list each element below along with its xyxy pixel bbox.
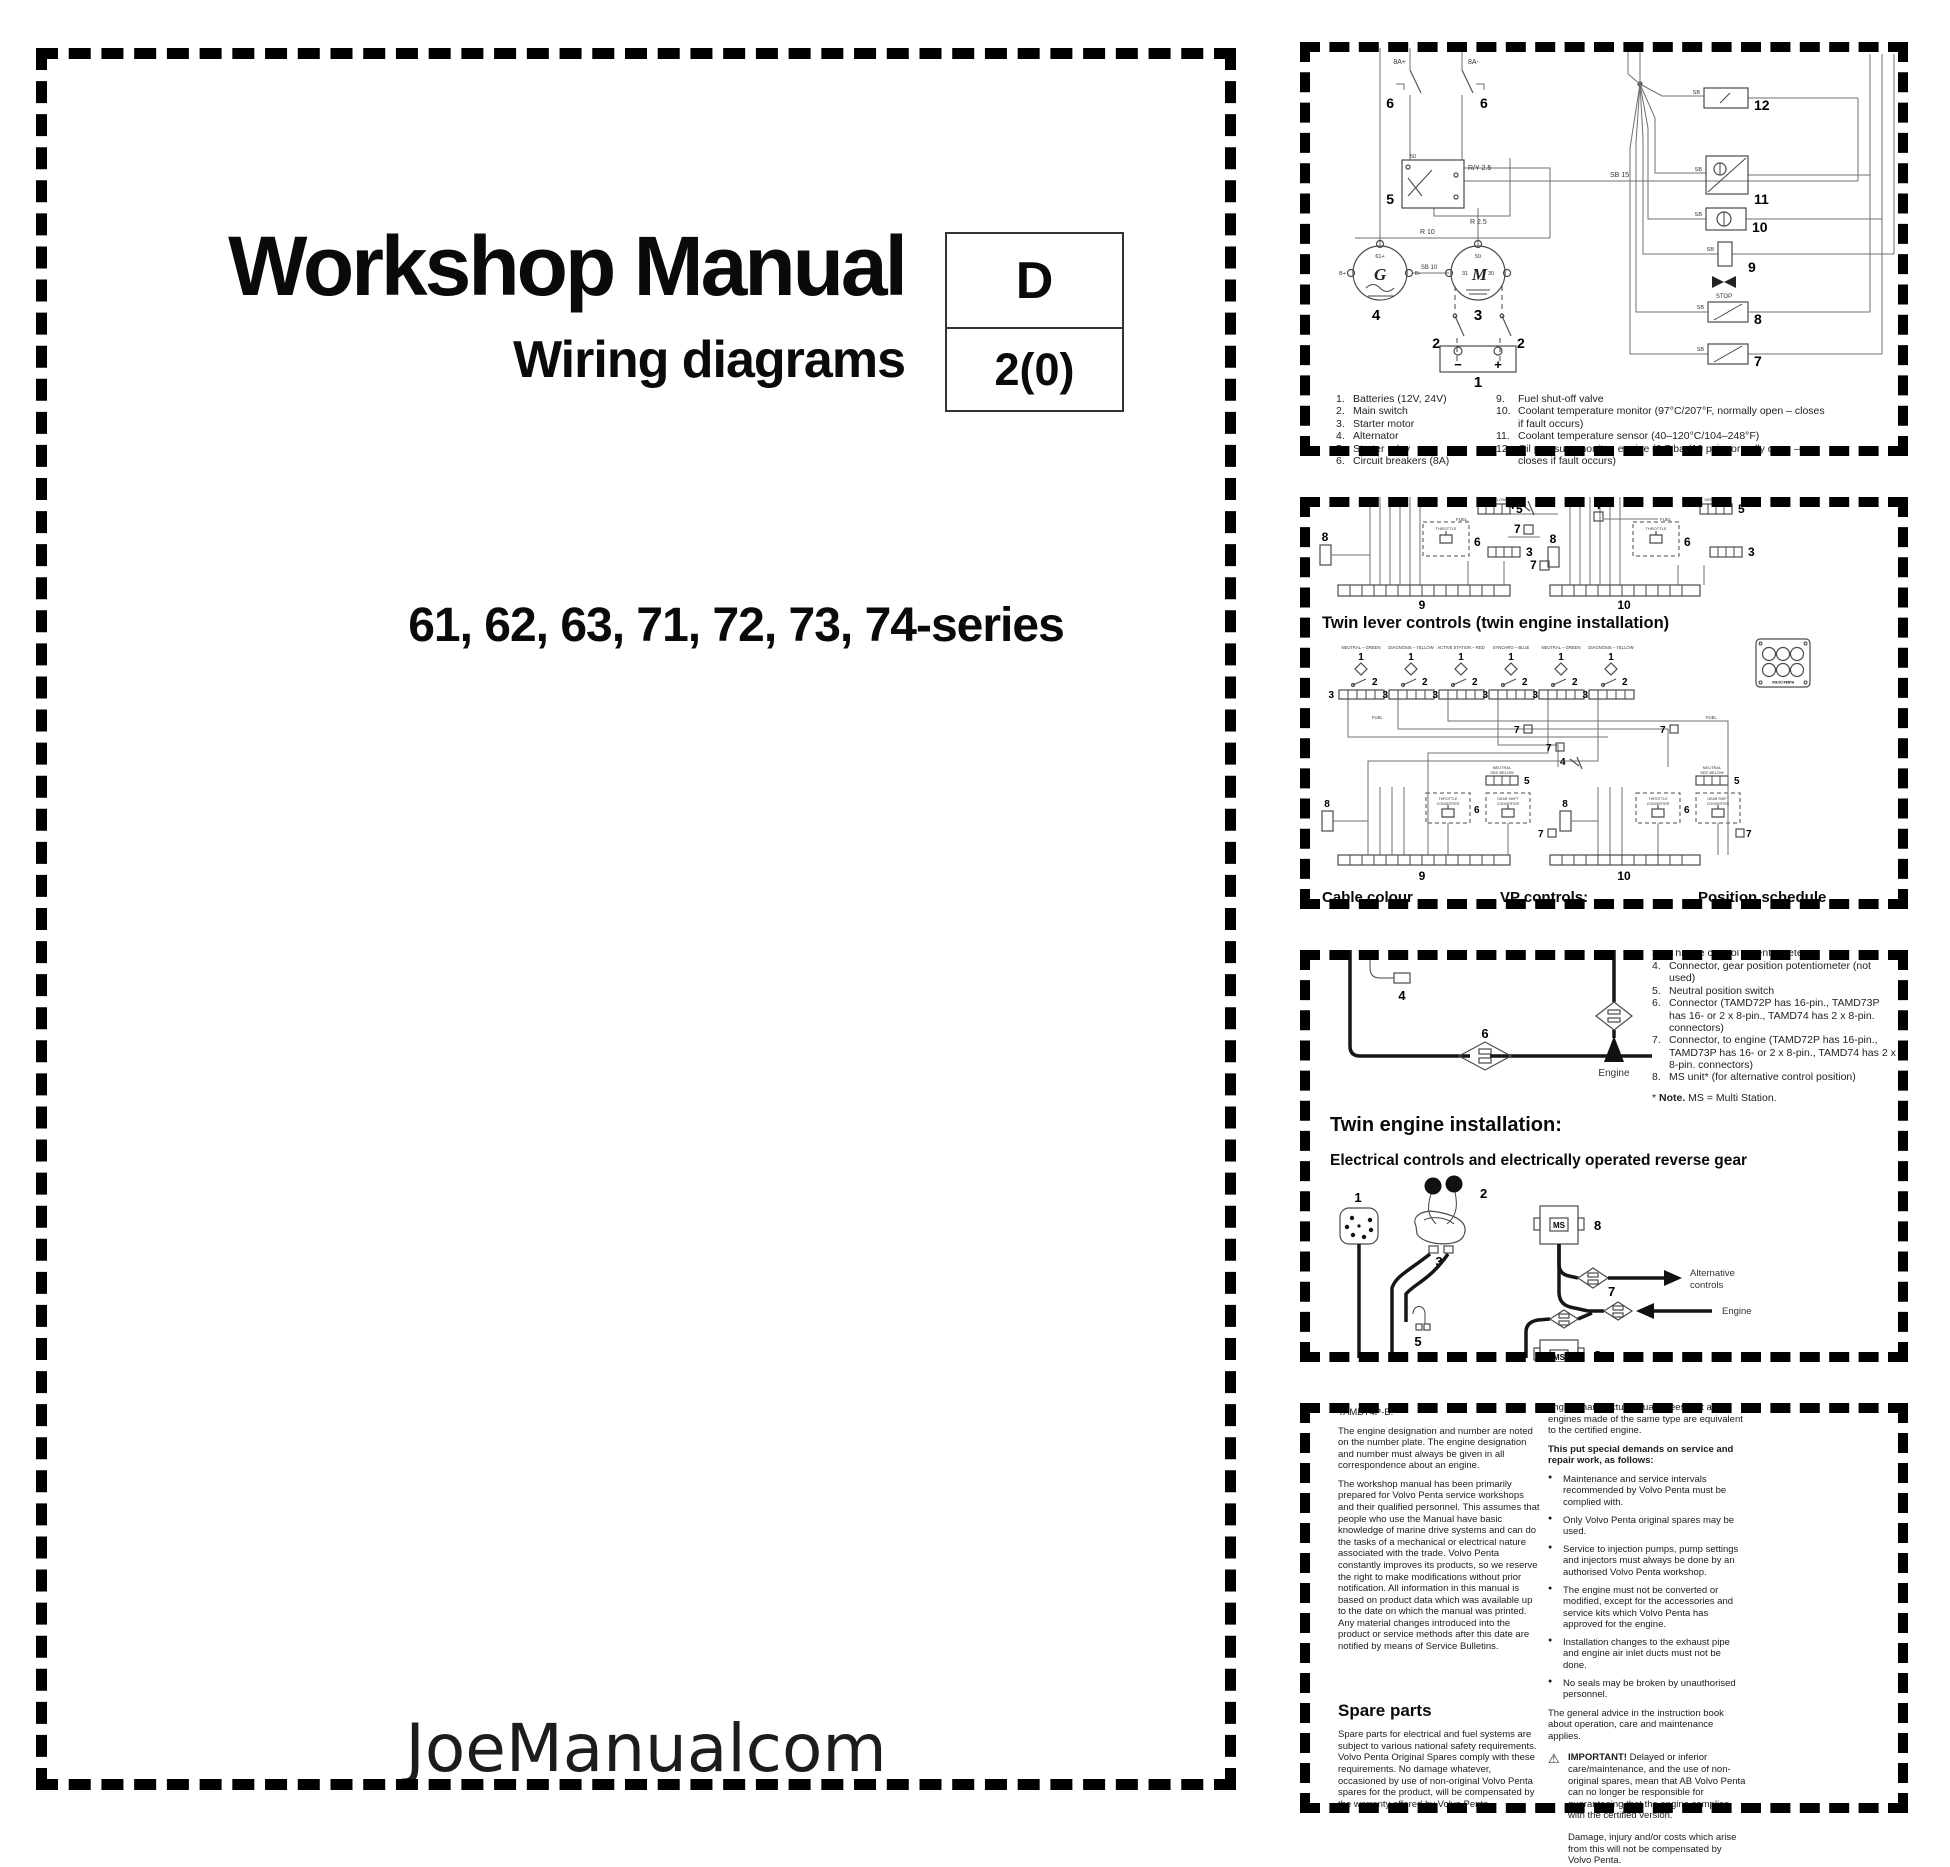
svg-text:1: 1 <box>1358 652 1364 663</box>
lower-right-group: NEUTRAL SEE BELOW 5 THROTTLE CONVERTER 6… <box>1560 765 1752 855</box>
svg-text:SB: SB <box>1695 212 1703 218</box>
svg-text:−: − <box>1454 357 1462 372</box>
wiring-diagram-panel: 8A+ 8A- 6 6 5 50 R/Y 2.5 SB 15 R 2.5 R 1… <box>1300 42 1908 456</box>
important-label: IMPORTANT! <box>1568 1752 1627 1763</box>
connector-8-mid: 8 <box>1548 532 1559 567</box>
svg-text:SB 10: SB 10 <box>1421 265 1438 271</box>
switch-unit-6: DIAGNOSIS – YELLOW 1 2 3 <box>1582 645 1634 701</box>
strip-3-right: 3 <box>1710 545 1755 559</box>
legend-item: 8.MS unit* (for alternative control posi… <box>1652 1071 1897 1083</box>
svg-text:7: 7 <box>1746 829 1752 840</box>
svg-text:9: 9 <box>1748 259 1756 275</box>
text-left-column: TAMD74P-B. The engine designation and nu… <box>1338 1407 1541 1817</box>
svg-text:2: 2 <box>1522 677 1528 688</box>
section-letter: D <box>947 234 1122 329</box>
svg-text:Engine: Engine <box>1722 1306 1752 1317</box>
svg-text:4: 4 <box>1372 307 1381 324</box>
list-item: Service to injection pumps, pump setting… <box>1548 1544 1746 1579</box>
svg-text:10: 10 <box>1617 869 1631 883</box>
electrical-controls-subheading: Electrical controls and electrically ope… <box>1330 1152 1747 1170</box>
terminal-strip-10: 10 <box>1550 585 1700 609</box>
switch-unit-1: NEUTRAL – GREEN 1 2 3 <box>1328 645 1384 701</box>
svg-text:50: 50 <box>1410 154 1416 160</box>
svg-text:10: 10 <box>1752 219 1768 235</box>
series-title: 61, 62, 63, 71, 72, 73, 74-series <box>336 598 1136 653</box>
svg-text:SB: SB <box>1693 90 1701 96</box>
svg-text:2: 2 <box>1572 677 1578 688</box>
svg-text:THROTTLE: THROTTLE <box>1435 526 1456 531</box>
legend-item: 6.Circuit breakers (8A) <box>1336 455 1488 467</box>
svg-text:GEAR SHIFT: GEAR SHIFT <box>1707 797 1729 801</box>
svg-text:1: 1 <box>1608 652 1614 663</box>
legend-item: 11.Coolant temperature sensor (40–120°C/… <box>1496 430 1826 442</box>
svg-text:2: 2 <box>1480 1186 1487 1201</box>
svg-text:G: G <box>1374 265 1387 284</box>
svg-text:3: 3 <box>1526 545 1533 559</box>
watermark-text: JoeManualcom <box>376 1710 916 1787</box>
switch-unit-5: NEUTRAL – GREEN 1 2 3 <box>1532 645 1584 701</box>
svg-text:Engine: Engine <box>1598 1068 1630 1079</box>
warning-icon: ⚠ <box>1548 1752 1568 1821</box>
svg-text:DIAGNOSIS – YELLOW: DIAGNOSIS – YELLOW <box>1588 645 1633 650</box>
ms-unit-2-symbol-partial: MS 8 <box>1534 1340 1601 1362</box>
svg-text:R 2.5: R 2.5 <box>1470 219 1487 226</box>
connector-8-left: 8 <box>1320 530 1370 565</box>
svg-text:2: 2 <box>1472 677 1478 688</box>
svg-text:6: 6 <box>1684 535 1691 549</box>
oil-pressure-monitor-symbol: 12 <box>1704 88 1770 113</box>
svg-text:7: 7 <box>1530 558 1537 572</box>
legend-item-clipped: 3.Throttle control potentiometer <box>1652 950 1897 960</box>
paragraph: The workshop manual has been primarily p… <box>1338 1479 1541 1653</box>
footer-cable-colour: Cable colour <box>1322 889 1413 906</box>
section-number: 2(0) <box>947 329 1122 410</box>
svg-text:SB: SB <box>1695 167 1703 173</box>
wire-bundles: FUEL FUEL <box>1370 497 1704 585</box>
svg-text:3: 3 <box>1532 690 1538 701</box>
paragraph: engine manufacturer guarantees that all … <box>1548 1402 1746 1437</box>
page-subtitle: Wiring diagrams <box>345 334 905 386</box>
svg-text:4: 4 <box>1560 757 1566 768</box>
svg-text:R 10: R 10 <box>1420 229 1435 236</box>
legend-item: 2.Main switch <box>1336 405 1488 417</box>
svg-text:NEUTRAL – GREEN: NEUTRAL – GREEN <box>1542 645 1581 650</box>
manual-text-panel: TAMD74P-B. The engine designation and nu… <box>1300 1403 1908 1813</box>
svg-text:THROTTLE: THROTTLE <box>1645 526 1666 531</box>
svg-text:5: 5 <box>1524 776 1530 787</box>
svg-text:61+: 61+ <box>1375 254 1384 260</box>
svg-text:DIAGNOSIS – YELLOW: DIAGNOSIS – YELLOW <box>1388 645 1433 650</box>
svg-text:1: 1 <box>1458 652 1464 663</box>
svg-text:8: 8 <box>1322 530 1329 544</box>
svg-text:VOLVO PENTA: VOLVO PENTA <box>1772 681 1795 685</box>
main-wiring-schematic: 8A+ 8A- 6 6 5 50 R/Y 2.5 SB 15 R 2.5 R 1… <box>1310 48 1900 388</box>
svg-text:SB: SB <box>1707 247 1715 253</box>
list-item: Installation changes to the exhaust pipe… <box>1548 1637 1746 1672</box>
starter-relay-symbol: 5 50 R/Y 2.5 SB 15 R 2.5 R 10 <box>1386 154 1629 236</box>
diagram1-legend: 1.Batteries (12V, 24V) 2.Main switch 3.S… <box>1336 393 1896 467</box>
svg-text:SB: SB <box>1697 305 1705 311</box>
svg-text:MS: MS <box>1553 1221 1566 1230</box>
svg-text:31: 31 <box>1462 271 1468 277</box>
svg-text:SB 15: SB 15 <box>1610 172 1629 179</box>
demands-heading: This put special demands on service and … <box>1548 1444 1746 1467</box>
svg-text:2: 2 <box>1432 335 1440 351</box>
svg-text:B+: B+ <box>1339 271 1346 277</box>
svg-text:B-: B- <box>1415 271 1421 277</box>
svg-text:SEE BELOW: SEE BELOW <box>1704 497 1728 502</box>
paragraph: Damage, injury and/or costs which arise … <box>1568 1832 1746 1867</box>
twin-engine-installation-panel: 4 6 Engine 3.Throttle control potentiome… <box>1300 950 1908 1362</box>
legend-left-column: 1.Batteries (12V, 24V) 2.Main switch 3.S… <box>1336 393 1488 467</box>
svg-text:11: 11 <box>1754 191 1769 207</box>
svg-text:8: 8 <box>1550 532 1557 546</box>
svg-text:3: 3 <box>1482 690 1488 701</box>
svg-text:1: 1 <box>1474 374 1482 388</box>
svg-text:1: 1 <box>1408 652 1414 663</box>
footer-vp-controls: VP controls: <box>1500 889 1588 906</box>
fuel-shutoff-valve-symbol: STOP 9 <box>1712 242 1756 300</box>
legend-item: 4.Connector, gear position potentiometer… <box>1652 960 1897 985</box>
svg-text:3: 3 <box>1328 690 1334 701</box>
cover-panel: Workshop Manual Wiring diagrams D 2(0) 6… <box>36 48 1236 1790</box>
svg-text:8: 8 <box>1324 799 1330 810</box>
installation-legend: 3.Throttle control potentiometer 4.Conne… <box>1652 950 1897 1104</box>
legend-item: 1.Batteries (12V, 24V) <box>1336 393 1488 405</box>
list-item: Only Volvo Penta original spares may be … <box>1548 1515 1746 1538</box>
svg-text:MS: MS <box>1553 1353 1566 1362</box>
controls-schematic-top: FUEL FUEL 8 THROTTLE 6 NEUTRAL SEE BELOW… <box>1308 497 1900 609</box>
ms-note: * Note. MS = Multi Station. <box>1652 1092 1897 1104</box>
coolant-temp-monitor-symbol: 10 <box>1706 208 1768 235</box>
svg-text:2: 2 <box>1372 677 1378 688</box>
cable-loop: 4 6 <box>1350 950 1652 1070</box>
svg-text:6: 6 <box>1684 805 1690 816</box>
svg-text:3: 3 <box>1382 690 1388 701</box>
paragraph: The general advice in the instruction bo… <box>1548 1708 1746 1743</box>
svg-text:SEE BELOW: SEE BELOW <box>1700 770 1724 775</box>
svg-text:FUEL: FUEL <box>1456 517 1468 522</box>
lower-left-group: 4 NEUTRAL SEE BELOW 5 THROTTLE CONVERTER… <box>1322 757 1582 855</box>
engine-arrow: Engine <box>1596 950 1632 1079</box>
svg-text:7: 7 <box>1538 829 1544 840</box>
ms-unit-symbol: MS 8 <box>1534 1206 1601 1244</box>
svg-text:THROTTLE: THROTTLE <box>1649 797 1669 801</box>
legend-right-column: 9.Fuel shut-off valve 10.Coolant tempera… <box>1496 393 1826 467</box>
legend-item: 9.Fuel shut-off valve <box>1496 393 1826 405</box>
svg-text:3: 3 <box>1432 690 1438 701</box>
svg-text:8: 8 <box>1562 799 1568 810</box>
svg-text:1: 1 <box>1508 652 1514 663</box>
svg-text:6: 6 <box>1474 805 1480 816</box>
model-designation: TAMD74P-B. <box>1338 1407 1541 1419</box>
throttle-box-right: THROTTLE 6 <box>1633 522 1691 556</box>
svg-text:9: 9 <box>1419 598 1426 609</box>
svg-text:4: 4 <box>1398 988 1406 1003</box>
svg-text:3: 3 <box>1748 545 1755 559</box>
svg-text:FUEL: FUEL <box>1706 715 1717 720</box>
svg-text:7: 7 <box>1660 725 1666 736</box>
engine-branch: 7 Engine <box>1526 1244 1752 1358</box>
paragraph: Spare parts for electrical and fuel syst… <box>1338 1729 1541 1810</box>
svg-text:ACTIVE STATION – RED: ACTIVE STATION – RED <box>1437 645 1484 650</box>
svg-text:8A+: 8A+ <box>1393 59 1406 66</box>
svg-text:3: 3 <box>1582 690 1588 701</box>
list-item: No seals may be broken by unauthorised p… <box>1548 1678 1746 1701</box>
svg-text:5: 5 <box>1414 1334 1421 1349</box>
important-note: ⚠ IMPORTANT! Delayed or inferior care/ma… <box>1548 1752 1746 1821</box>
svg-text:5: 5 <box>1738 502 1745 516</box>
svg-text:+: + <box>1494 357 1502 372</box>
page-title: Workshop Manual <box>145 224 905 308</box>
svg-text:2: 2 <box>1622 677 1628 688</box>
svg-text:7: 7 <box>1596 498 1603 512</box>
svg-text:1: 1 <box>1354 1190 1361 1205</box>
terminal-strip-10-lower: 10 <box>1550 855 1700 883</box>
interconnect-wires: FUEL FUEL 7 7 7 <box>1348 699 1728 767</box>
svg-text:10: 10 <box>1617 598 1631 609</box>
svg-text:FUEL: FUEL <box>1372 715 1383 720</box>
electrical-controls-schematic: 1 2 3 5 <box>1312 1172 1896 1362</box>
svg-text:3: 3 <box>1474 307 1482 324</box>
svg-text:THROTTLE: THROTTLE <box>1439 797 1459 801</box>
paragraph: The engine designation and number are no… <box>1338 1426 1541 1472</box>
svg-text:7: 7 <box>1754 353 1762 369</box>
alternator-symbol: G 61+ B+ B- 4 <box>1339 241 1421 325</box>
switch-unit-2: DIAGNOSIS – YELLOW 1 2 3 <box>1382 645 1434 701</box>
svg-text:STOP: STOP <box>1716 294 1732 300</box>
connector-1-symbol: 1 <box>1340 1190 1378 1358</box>
svg-text:SYNCHRO – BLUE: SYNCHRO – BLUE <box>1493 645 1530 650</box>
demands-list: Maintenance and service intervals recomm… <box>1548 1474 1746 1701</box>
terminal-strip-9: 9 <box>1338 585 1510 609</box>
throttle-box-left: THROTTLE 6 <box>1423 522 1481 556</box>
legend-item: 4.Alternator <box>1336 430 1488 442</box>
svg-text:9: 9 <box>1419 869 1426 883</box>
controls-schematic-bottom: NEUTRAL – GREEN 1 2 3 DIAGNOSIS – YELLOW… <box>1308 637 1900 885</box>
svg-text:7: 7 <box>1608 1284 1615 1299</box>
svg-text:2: 2 <box>1422 677 1428 688</box>
svg-text:30: 30 <box>1488 271 1494 277</box>
svg-text:50: 50 <box>1475 254 1481 260</box>
list-item: The engine must not be converted or modi… <box>1548 1585 1746 1631</box>
svg-text:7: 7 <box>1514 522 1521 536</box>
svg-text:4: 4 <box>1508 498 1515 512</box>
svg-text:5: 5 <box>1734 776 1740 787</box>
svg-text:6: 6 <box>1386 95 1394 111</box>
legend-item: 6.Connector (TAMD72P has 16-pin., TAMD73… <box>1652 997 1897 1034</box>
legend-item: 7.Connector, to engine (TAMD72P has 16-p… <box>1652 1034 1897 1071</box>
starter-motor-symbol: M 50 31 30 SB 10 3 <box>1421 241 1511 325</box>
svg-text:1: 1 <box>1558 652 1564 663</box>
twin-lever-controls-panel: FUEL FUEL 8 THROTTLE 6 NEUTRAL SEE BELOW… <box>1300 497 1908 909</box>
circuit-breaker-symbols: 8A+ 8A- 6 6 <box>1386 59 1488 111</box>
svg-text:5: 5 <box>1386 191 1394 207</box>
neutral-strip-right: NEUTRAL SEE BELOW 5 <box>1700 497 1745 516</box>
svg-text:GEAR SHIFT: GEAR SHIFT <box>1497 797 1519 801</box>
switch-unit-4: SYNCHRO – BLUE 1 2 3 <box>1482 645 1534 701</box>
monitor-7-symbol: 7 <box>1708 344 1762 369</box>
svg-text:7: 7 <box>1514 725 1520 736</box>
switch-unit-3: ACTIVE STATION – RED 1 2 3 <box>1432 645 1484 701</box>
legend-item: 3.Starter motor <box>1336 418 1488 430</box>
svg-text:SEE BELOW: SEE BELOW <box>1482 497 1506 502</box>
svg-text:NEUTRAL – GREEN: NEUTRAL – GREEN <box>1342 645 1381 650</box>
engine-connection-schematic: 4 6 Engine <box>1312 950 1652 1082</box>
svg-text:8A-: 8A- <box>1468 59 1480 66</box>
list-item: Maintenance and service intervals recomm… <box>1548 1474 1746 1509</box>
svg-text:6: 6 <box>1480 95 1488 111</box>
legend-item: 10.Coolant temperature monitor (97°C/207… <box>1496 405 1826 430</box>
svg-text:6: 6 <box>1481 1026 1488 1041</box>
text-right-column: engine manufacturer guarantees that all … <box>1548 1407 1746 1867</box>
alternative-controls-branch: Alternative controls <box>1559 1244 1735 1291</box>
svg-text:8: 8 <box>1754 311 1762 327</box>
svg-text:R/Y 2.5: R/Y 2.5 <box>1468 165 1491 172</box>
svg-text:FUEL: FUEL <box>1660 517 1672 522</box>
control-lever-symbol: 2 3 5 <box>1392 1176 1487 1359</box>
main-switch-battery-symbols: 2 2 − + 1 <box>1432 286 1525 388</box>
legend-item: 12.Oil pressure monitor, engine (0.7 bar… <box>1496 443 1826 468</box>
control-button-panel: VOLVO PENTA <box>1756 639 1810 687</box>
svg-text:Alternative: Alternative <box>1690 1268 1735 1279</box>
svg-text:12: 12 <box>1754 97 1770 113</box>
svg-text:6: 6 <box>1474 535 1481 549</box>
svg-text:SEE BELOW: SEE BELOW <box>1490 770 1514 775</box>
section-code-box: D 2(0) <box>945 232 1124 412</box>
monitor-8-symbol: 8 <box>1708 302 1762 327</box>
neutral-strip-left: NEUTRAL SEE BELOW 5 <box>1478 497 1523 516</box>
twin-engine-heading: Twin engine installation: <box>1330 1114 1562 1137</box>
spare-parts-heading: Spare parts <box>1338 1701 1541 1722</box>
terminal-strip-9-lower: 9 <box>1338 855 1510 883</box>
svg-text:controls: controls <box>1690 1280 1724 1291</box>
twin-lever-heading: Twin lever controls (twin engine install… <box>1322 614 1882 633</box>
svg-text:7: 7 <box>1546 743 1552 754</box>
strip-3-left: 3 <box>1488 545 1533 559</box>
legend-item: 5.Starter relay <box>1336 443 1488 455</box>
legend-item: 5.Neutral position switch <box>1652 985 1897 997</box>
svg-text:8: 8 <box>1594 1348 1601 1362</box>
svg-text:SB: SB <box>1697 347 1705 353</box>
svg-text:2: 2 <box>1517 335 1525 351</box>
footer-position-schedule: Position schedule <box>1698 889 1826 906</box>
svg-text:8: 8 <box>1594 1218 1601 1233</box>
svg-text:M: M <box>1471 265 1488 284</box>
